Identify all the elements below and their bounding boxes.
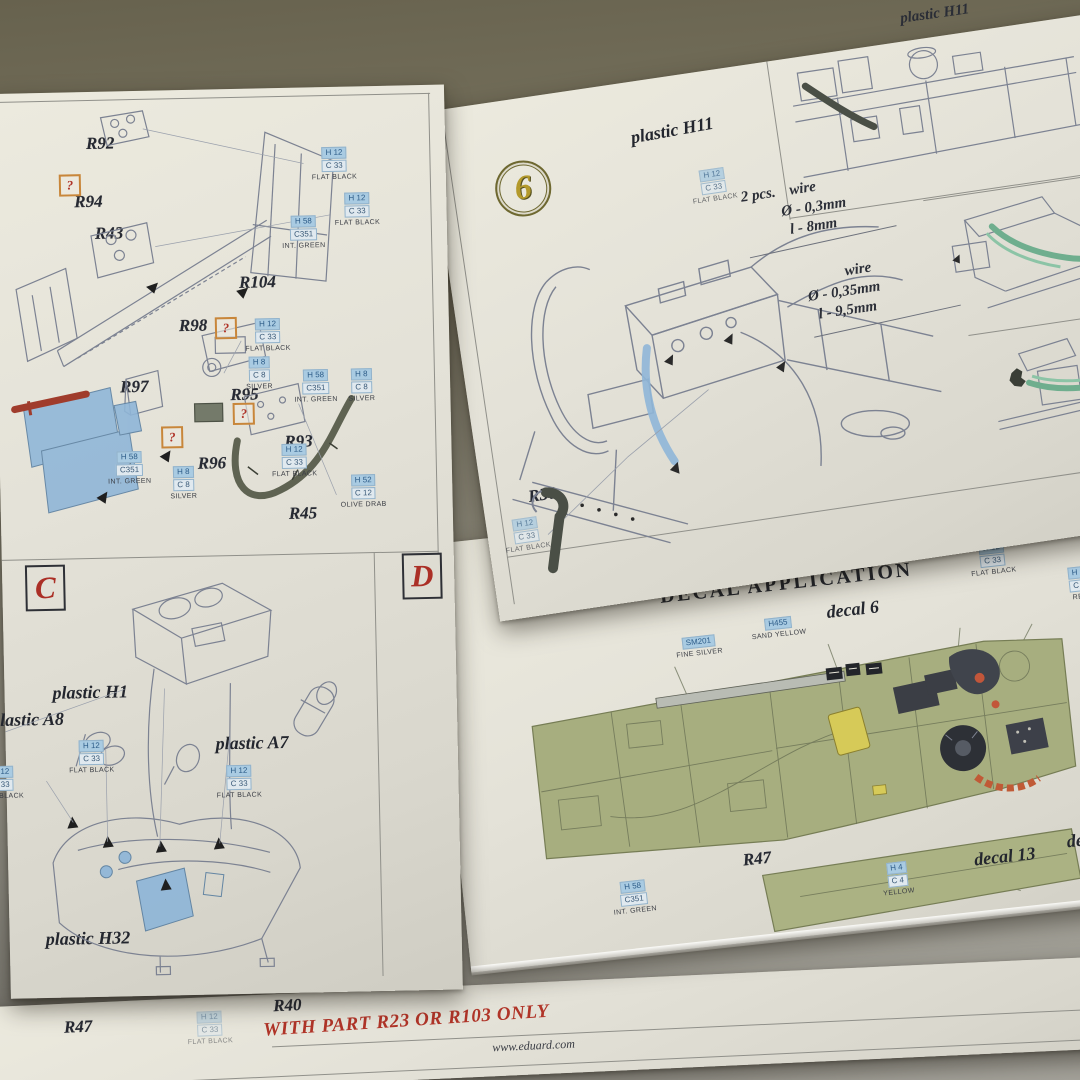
paint-name: INT. GREEN xyxy=(282,242,325,251)
paint-code-mrcolor: C 33 xyxy=(79,753,104,766)
paint-code-mrcolor: C 33 xyxy=(701,180,727,196)
section-label-d: D xyxy=(402,553,443,600)
paint-code-mrcolor: C 33 xyxy=(514,529,540,545)
paint-code-mrcolor: C 8 xyxy=(351,381,372,393)
footer-rule-bottom xyxy=(94,1038,1080,1080)
photo-of-instruction-sheets: R47 H 12 C 33 FLAT BLACK R40 WITH PART R… xyxy=(0,0,1080,1080)
question-mark: ? xyxy=(240,406,247,422)
left-instruction-sheet: R92 R94 R43 R104 R98 R97 R95 R96 R93 R45… xyxy=(0,85,463,999)
question-mark-box: ? xyxy=(233,403,255,425)
paint-code-metallic: SM201 xyxy=(681,634,715,650)
paint-code-aqueous: H 8 xyxy=(351,368,372,380)
paint-name: FLAT BLACK xyxy=(312,173,358,182)
paint-name: FLAT BLACK xyxy=(971,566,1017,579)
paint-name: FLAT BLACK xyxy=(0,792,24,801)
question-mark: ? xyxy=(223,320,230,336)
paint-callout-silver: H 8 C 8 SILVER xyxy=(170,466,198,502)
paint-name: FLAT BLACK xyxy=(188,1037,234,1047)
paint-code-mrcolor: C 33 xyxy=(282,456,307,469)
paint-code-aqueous: H 58 xyxy=(291,215,316,228)
paint-callout-silver: H 8 C 8 SILVER xyxy=(246,356,274,392)
step-number: 6 xyxy=(512,168,534,208)
paint-name: INT. GREEN xyxy=(294,396,337,405)
paint-callout-int-green: H 58 C351 INT. GREEN xyxy=(108,451,152,487)
paint-code-mrcolor: C 33 xyxy=(345,205,370,218)
paint-name: SILVER xyxy=(170,493,197,502)
paint-name: SILVER xyxy=(348,395,375,404)
paint-code-aqueous: H 12 xyxy=(344,192,369,205)
part-label-r40: R40 xyxy=(273,995,302,1016)
plastic-h11-label: plastic H11 xyxy=(629,113,715,149)
paint-code-mrcolor: C 33 xyxy=(980,553,1006,568)
paint-code-aqueous: H 12 xyxy=(321,147,346,160)
wire-routing-inset-upper xyxy=(932,176,1080,334)
paint-code-mrcolor: C351 xyxy=(290,228,317,241)
paint-code-mrcolor: C 3 xyxy=(1069,578,1080,592)
step6-instruction-sheet: 6 plastic H11 H 12 C 33 FLAT BLACK 2 pcs… xyxy=(425,0,1080,621)
paint-code-aqueous: H 12 xyxy=(255,318,280,331)
paint-code-aqueous: H 58 xyxy=(117,451,142,464)
paint-callout-flat-black: H 12 C 33 FLAT BLACK xyxy=(245,318,291,354)
paint-code-aqueous: H 52 xyxy=(351,474,376,487)
wire-spec-b: wire Ø - 0,35mm l - 9,5mm xyxy=(804,258,885,327)
paint-code-mrcolor: C 33 xyxy=(0,779,14,792)
paint-callout-int-green: H 58 C351 INT. GREEN xyxy=(282,215,326,251)
decal-6-label: decal 6 xyxy=(826,596,880,623)
paint-callout-int-green: H 58 C351 INT. GREEN xyxy=(611,878,658,917)
paint-code-aqueous: H455 xyxy=(764,616,792,631)
question-mark-box: ? xyxy=(59,174,81,196)
paint-callout-silver: H 8 C 8 SILVER xyxy=(348,368,376,404)
paint-code-mrcolor: C 8 xyxy=(249,369,270,381)
section-letter: D xyxy=(411,558,434,594)
paint-code-aqueous: H 3 xyxy=(1067,566,1080,580)
paint-callout-flat-black: H 12 C 33 FLAT BLACK xyxy=(216,765,262,801)
paint-code-mrcolor: C 8 xyxy=(173,479,194,491)
paint-name: SAND YELLOW xyxy=(752,628,807,642)
paint-callout-flat-black: H 12 C 33 FLAT BLACK xyxy=(69,740,115,776)
paint-callout-int-green: H 58 C351 INT. GREEN xyxy=(294,369,338,405)
step-6-badge: 6 xyxy=(491,157,555,221)
paint-code-aqueous: H 12 xyxy=(226,765,251,778)
paint-callout-flat-black: H 12 C 33 FLAT BLACK xyxy=(311,146,357,182)
paint-name: FLAT BLACK xyxy=(245,345,291,354)
paint-code-aqueous: H 12 xyxy=(282,443,307,456)
wire-a-qty: 2 pcs. xyxy=(740,185,777,206)
paint-name: SILVER xyxy=(246,383,273,392)
paint-code-mrcolor: C 33 xyxy=(197,1024,222,1037)
section-label-c: C xyxy=(25,565,66,612)
paint-code-aqueous: H 4 xyxy=(886,861,908,875)
paint-code-aqueous: H 8 xyxy=(173,466,194,478)
wire-a-material: wire xyxy=(788,179,817,199)
paint-callout-flat-black: H 12 C 33 FLAT BLACK xyxy=(271,443,317,479)
plastic-h11-corner-label: plastic H11 xyxy=(899,1,970,28)
paint-callout-flat-black-partial: H 12 C 33 FLAT BLACK xyxy=(0,765,24,801)
paint-code-mrcolor: C 12 xyxy=(351,487,376,500)
paint-callout-flat-black: H 12 C 33 FLAT BLACK xyxy=(334,192,380,228)
paint-callout-yellow: H 4 C 4 YELLOW xyxy=(880,860,915,898)
website-url: www.eduard.com xyxy=(492,1037,575,1056)
section-letter: C xyxy=(35,570,56,606)
paint-callout-olive-drab: H 52 C 12 OLIVE DRAB xyxy=(340,474,387,510)
paint-callout-sand-yellow: H455 SAND YELLOW xyxy=(750,614,807,642)
paint-name: RED xyxy=(1072,593,1080,603)
paint-code-mrcolor: C351 xyxy=(302,382,329,395)
paint-name: OLIVE DRAB xyxy=(341,501,387,510)
question-mark-box: ? xyxy=(215,317,237,339)
paint-callout-flat-black: H 12 C 33 FLAT BLACK xyxy=(186,1010,233,1047)
paint-code-mrcolor: C 33 xyxy=(322,160,347,173)
paint-code-aqueous: H 12 xyxy=(0,766,13,779)
paint-name: FLAT BLACK xyxy=(69,767,115,776)
paint-code-aqueous: H 12 xyxy=(79,740,104,753)
paint-code-aqueous: H 12 xyxy=(197,1011,222,1024)
paint-code-mrcolor: C 4 xyxy=(887,874,909,888)
part-label-r47-bottom: R47 xyxy=(64,1016,93,1037)
paint-callout-red: H 3 C 3 RED xyxy=(1067,566,1080,603)
paint-name: FLAT BLACK xyxy=(693,192,739,207)
paint-name: FLAT BLACK xyxy=(217,791,263,800)
paint-name: INT. GREEN xyxy=(108,478,151,487)
paint-code-mrcolor: C351 xyxy=(116,464,143,477)
paint-code-aqueous: H 8 xyxy=(249,356,270,368)
paint-code-mrcolor: C 33 xyxy=(227,778,252,791)
paint-code-mrcolor: C 33 xyxy=(255,331,280,344)
paint-callout-flat-black: H 12 C 33 FLAT BLACK xyxy=(502,515,552,556)
paint-code-aqueous: H 58 xyxy=(303,369,328,382)
question-mark: ? xyxy=(67,177,74,193)
paint-code-mrcolor: C351 xyxy=(620,892,648,907)
paint-name: FLAT BLACK xyxy=(335,219,381,228)
question-mark: ? xyxy=(169,429,176,445)
paint-name: FLAT BLACK xyxy=(272,470,318,479)
paint-callout-flat-black: H 12 C 33 FLAT BLACK xyxy=(689,166,739,207)
question-mark-box: ? xyxy=(161,426,183,448)
